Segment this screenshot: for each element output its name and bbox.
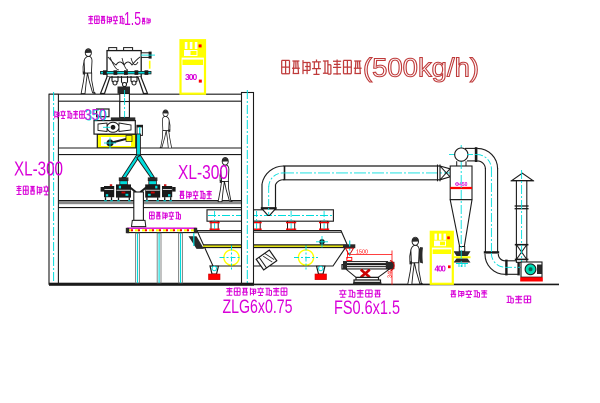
svg-text:350: 350 bbox=[84, 107, 106, 124]
svg-text:XL-300: XL-300 bbox=[14, 159, 63, 181]
svg-text:FS0.6x1.5: FS0.6x1.5 bbox=[334, 298, 400, 319]
svg-text:XL-300: XL-300 bbox=[178, 162, 228, 184]
svg-text:1500: 1500 bbox=[356, 250, 368, 256]
svg-text:ZLG6x0.75: ZLG6x0.75 bbox=[223, 297, 293, 318]
svg-text:300: 300 bbox=[185, 72, 197, 82]
svg-text:(500kg/h): (500kg/h) bbox=[363, 55, 479, 83]
svg-text:1.5: 1.5 bbox=[124, 9, 141, 29]
svg-text:400: 400 bbox=[435, 265, 447, 274]
